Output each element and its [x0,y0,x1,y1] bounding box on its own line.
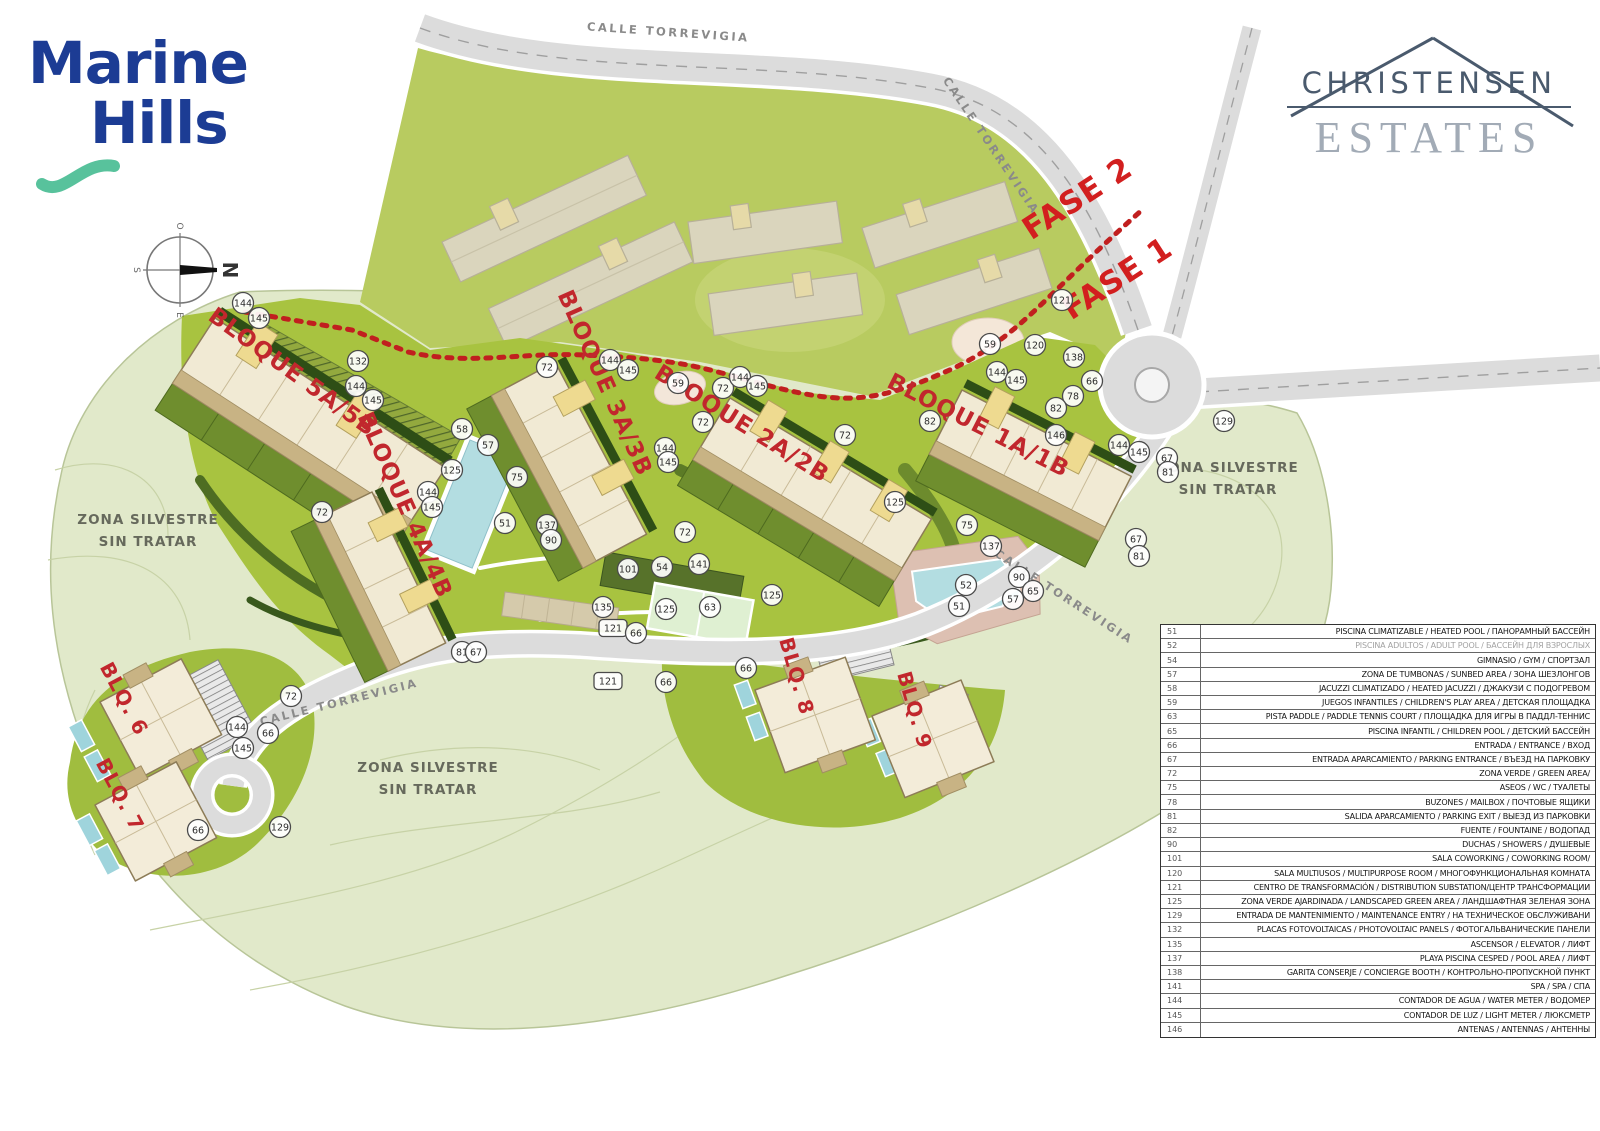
marine-hills-word-marine: Marine [28,34,288,92]
map-marker-129: 129 [1214,411,1235,432]
map-marker-121: 121 [599,620,627,637]
legend-row: 75 ASEOS / WC / ТУАЛЕТЫ [1161,781,1595,795]
map-marker-58: 58 [452,419,473,440]
legend-number: 81 [1161,810,1201,823]
svg-text:90: 90 [545,535,557,546]
legend-row: 63 PISTA PADDLE / PADDLE TENNIS COURT / … [1161,710,1595,724]
legend-row: 82 FUENTE / FOUNTAINE / ВОДОПАД [1161,824,1595,838]
svg-text:101: 101 [619,564,637,575]
legend-description: PISCINA ADULTOS / ADULT POOL / БАССЕЙН Д… [1201,641,1595,650]
map-marker-66: 66 [736,658,757,679]
legend-number: 101 [1161,852,1201,865]
logo-divider [1287,106,1571,108]
marine-hills-logo: Marine Hills [28,34,288,194]
svg-text:51: 51 [953,601,965,612]
map-marker-144: 144 [987,362,1008,383]
legend-description: SPA / SPA / СПА [1201,982,1595,991]
legend-row: 78 BUZONES / MAILBOX / ПОЧТОВЫЕ ЯЩИКИ [1161,795,1595,809]
legend-number: 59 [1161,696,1201,709]
legend-row: 137 PLAYA PISCINA CESPED / POOL AREA / Л… [1161,952,1595,966]
legend-row: 57 ZONA DE TUMBONAS / SUNBED AREA / ЗОНА… [1161,668,1595,682]
map-marker-145: 145 [618,360,639,381]
legend-row: 120 SALA MULTIUSOS / MULTIPURPOSE ROOM /… [1161,867,1595,881]
north-arrow [180,265,217,275]
svg-text:145: 145 [250,313,268,324]
christensen-estates-logo: CHRISTENSEN ESTATES [1283,14,1575,164]
map-marker-144: 144 [227,717,248,738]
map-marker-125: 125 [442,460,463,481]
svg-text:81: 81 [1133,551,1145,562]
legend-number: 138 [1161,966,1201,979]
map-marker-90: 90 [541,530,562,551]
svg-text:144: 144 [1110,440,1128,451]
map-marker-66: 66 [626,623,647,644]
svg-text:137: 137 [982,541,1000,552]
map-marker-57: 57 [478,435,499,456]
map-marker-145: 145 [658,452,679,473]
legend-description: ENTRADA APARCAMIENTO / PARKING ENTRANCE … [1201,755,1595,764]
legend-description: ZONA VERDE / GREEN AREA/ [1201,769,1595,778]
svg-text:125: 125 [657,604,675,615]
legend-number: 132 [1161,923,1201,936]
legend-description: SALA COWORKING / COWORKING ROOM/ [1201,854,1595,863]
svg-text:72: 72 [285,691,297,702]
svg-text:145: 145 [748,381,766,392]
map-marker-145: 145 [1006,370,1027,391]
legend-number: 54 [1161,653,1201,666]
svg-text:66: 66 [1086,376,1098,387]
svg-text:67: 67 [470,647,482,658]
legend-row: 146 ANTENAS / ANTENNAS / АНТЕННЫ [1161,1023,1595,1037]
svg-text:144: 144 [601,355,619,366]
legend-description: DUCHAS / SHOWERS / ДУШЕВЫЕ [1201,840,1595,849]
map-marker-81: 81 [1158,462,1179,483]
legend-number: 141 [1161,980,1201,993]
svg-text:67: 67 [1130,534,1142,545]
page: { "branding": { "marine_hills": {"line1"… [0,0,1600,1131]
compass-e: E [174,312,184,318]
map-marker-66: 66 [656,672,677,693]
legend-number: 90 [1161,838,1201,851]
svg-text:121: 121 [1053,295,1071,306]
legend-description: SALIDA APARCAMIENTO / PARKING EXIT / ВЫЕ… [1201,812,1595,821]
svg-text:63: 63 [704,602,716,613]
svg-text:90: 90 [1013,572,1025,583]
legend-description: ZONA VERDE AJARDINADA / LANDSCAPED GREEN… [1201,897,1595,906]
svg-text:72: 72 [316,507,328,518]
roundabout [1100,333,1204,437]
legend-row: 144 CONTADOR DE AGUA / WATER METER / ВОД… [1161,994,1595,1008]
svg-text:129: 129 [271,822,289,833]
legend-row: 138 GARITA CONSERJE / CONCIERGE BOOTH / … [1161,966,1595,980]
legend-number: 58 [1161,682,1201,695]
map-marker-72: 72 [281,686,302,707]
svg-text:75: 75 [961,520,973,531]
map-marker-51: 51 [495,513,516,534]
legend-number: 67 [1161,753,1201,766]
legend-description: ASCENSOR / ELEVATOR / ЛИФТ [1201,940,1595,949]
svg-text:145: 145 [234,743,252,754]
svg-text:75: 75 [511,472,523,483]
legend-number: 135 [1161,938,1201,951]
map-marker-125: 125 [762,585,783,606]
svg-text:66: 66 [262,728,274,739]
svg-text:145: 145 [1130,447,1148,458]
legend-number: 65 [1161,724,1201,737]
svg-text:57: 57 [1007,594,1019,605]
map-marker-82: 82 [920,411,941,432]
legend-description: CENTRO DE TRANSFORMACIÓN / DISTRIBUTION … [1201,883,1595,892]
legend-description: JUEGOS INFANTILES / CHILDREN'S PLAY AREA… [1201,698,1595,707]
legend-description: ANTENAS / ANTENNAS / АНТЕННЫ [1201,1025,1595,1034]
svg-text:66: 66 [740,663,752,674]
map-marker-72: 72 [537,357,558,378]
legend-number: 72 [1161,767,1201,780]
map-marker-145: 145 [249,308,270,329]
legend-row: 67 ENTRADA APARCAMIENTO / PARKING ENTRAN… [1161,753,1595,767]
svg-text:72: 72 [541,362,553,373]
svg-text:66: 66 [660,677,672,688]
svg-text:51: 51 [499,518,511,529]
legend-description: BUZONES / MAILBOX / ПОЧТОВЫЕ ЯЩИКИ [1201,798,1595,807]
legend-row: 81 SALIDA APARCAMIENTO / PARKING EXIT / … [1161,810,1595,824]
compass-w: O [174,222,184,229]
map-marker-72: 72 [693,412,714,433]
legend-description: PISCINA CLIMATIZABLE / HEATED POOL / ПАН… [1201,627,1595,636]
legend-number: 75 [1161,781,1201,794]
svg-text:59: 59 [672,378,684,389]
map-marker-144: 144 [1109,435,1130,456]
map-marker-138: 138 [1064,347,1085,368]
map-marker-129: 129 [270,817,291,838]
svg-text:72: 72 [717,383,729,394]
legend-number: 121 [1161,881,1201,894]
road-label-calle-torrevigia-1: CALLE TORREVIGIA [587,19,750,44]
legend-row: 51 PISCINA CLIMATIZABLE / HEATED POOL / … [1161,625,1595,639]
svg-text:66: 66 [630,628,642,639]
svg-text:132: 132 [349,356,367,367]
legend-row: 135 ASCENSOR / ELEVATOR / ЛИФТ [1161,938,1595,952]
svg-text:145: 145 [423,502,441,513]
legend-row: 90 DUCHAS / SHOWERS / ДУШЕВЫЕ [1161,838,1595,852]
legend-row: 121 CENTRO DE TRANSFORMACIÓN / DISTRIBUT… [1161,881,1595,895]
map-marker-145: 145 [1129,442,1150,463]
legend-description: ZONA DE TUMBONAS / SUNBED AREA / ЗОНА ШЕ… [1201,670,1595,679]
map-marker-72: 72 [675,522,696,543]
legend-number: 145 [1161,1009,1201,1022]
legend-description: ENTRADA DE MANTENIMIENTO / MAINTENANCE E… [1201,911,1595,920]
map-marker-144: 144 [346,376,367,397]
map-marker-132: 132 [348,351,369,372]
compass-n: N [218,262,242,279]
svg-text:125: 125 [443,465,461,476]
svg-text:82: 82 [924,416,936,427]
svg-text:66: 66 [192,825,204,836]
map-marker-145: 145 [363,390,384,411]
svg-text:141: 141 [690,559,708,570]
legend-number: 82 [1161,824,1201,837]
legend-number: 78 [1161,795,1201,808]
legend-row: 52 PISCINA ADULTOS / ADULT POOL / БАССЕЙ… [1161,639,1595,653]
map-marker-145: 145 [747,376,768,397]
svg-text:120: 120 [1026,340,1044,351]
legend-description: CONTADOR DE LUZ / LIGHT METER / ЛЮКСМЕТР [1201,1011,1595,1020]
map-marker-145: 145 [233,738,254,759]
legend-number: 129 [1161,909,1201,922]
legend-number: 57 [1161,668,1201,681]
marine-hills-word-hills: Hills [90,94,288,152]
svg-text:54: 54 [656,562,668,573]
map-marker-121: 121 [594,673,622,690]
svg-text:146: 146 [1047,430,1065,441]
svg-text:72: 72 [697,417,709,428]
map-marker-121: 121 [1052,290,1073,311]
legend-row: 65 PISCINA INFANTIL / CHILDREN POOL / ДЕ… [1161,724,1595,738]
svg-text:144: 144 [228,722,246,733]
legend-description: PISTA PADDLE / PADDLE TENNIS COURT / ПЛО… [1201,712,1595,721]
legend-number: 146 [1161,1023,1201,1037]
svg-text:72: 72 [839,430,851,441]
map-marker-120: 120 [1025,335,1046,356]
legend-row: 141 SPA / SPA / СПА [1161,980,1595,994]
map-marker-135: 135 [593,597,614,618]
svg-text:129: 129 [1215,416,1233,427]
svg-text:144: 144 [731,372,749,383]
legend-number: 144 [1161,994,1201,1007]
legend-number: 125 [1161,895,1201,908]
svg-text:81: 81 [1162,467,1174,478]
svg-text:57: 57 [482,440,494,451]
map-marker-66: 66 [1082,371,1103,392]
phase2-area [360,48,1126,396]
svg-text:65: 65 [1027,586,1039,597]
legend-description: ASEOS / WC / ТУАЛЕТЫ [1201,783,1595,792]
legend-description: GARITA CONSERJE / CONCIERGE BOOTH / КОНТ… [1201,968,1595,977]
legend-row: 101 SALA COWORKING / COWORKING ROOM/ [1161,852,1595,866]
legend-row: 132 PLACAS FOTOVOLTAICAS / PHOTOVOLTAIC … [1161,923,1595,937]
svg-text:82: 82 [1050,403,1062,414]
map-marker-81: 81 [1129,546,1150,567]
svg-text:145: 145 [659,457,677,468]
legend-description: ENTRADA / ENTRANCE / ВХОД [1201,741,1595,750]
map-marker-75: 75 [957,515,978,536]
svg-text:78: 78 [1067,391,1079,402]
map-marker-125: 125 [656,599,677,620]
legend-row: 66 ENTRADA / ENTRANCE / ВХОД [1161,739,1595,753]
legend-number: 52 [1161,639,1201,652]
map-marker-54: 54 [652,557,673,578]
svg-text:135: 135 [594,602,612,613]
map-marker-141: 141 [689,554,710,575]
map-marker-137: 137 [981,536,1002,557]
svg-text:121: 121 [599,676,617,687]
legend-row: 54 GIMNASIO / GYM / СПОРТЗАЛ [1161,653,1595,667]
map-marker-67: 67 [466,642,487,663]
estates-wordmark: ESTATES [1283,112,1575,163]
svg-text:144: 144 [988,367,1006,378]
legend-number: 51 [1161,625,1201,638]
map-marker-145: 145 [422,497,443,518]
legend-row: 129 ENTRADA DE MANTENIMIENTO / MAINTENAN… [1161,909,1595,923]
legend-description: GIMNASIO / GYM / СПОРТЗАЛ [1201,656,1595,665]
map-marker-59: 59 [668,373,689,394]
svg-text:145: 145 [619,365,637,376]
svg-text:144: 144 [347,381,365,392]
legend-row: 59 JUEGOS INFANTILES / CHILDREN'S PLAY A… [1161,696,1595,710]
legend-description: JACUZZI CLIMATIZADO / HEATED JACUZZI / Д… [1201,684,1595,693]
map-marker-146: 146 [1046,425,1067,446]
compass-s: S [131,267,141,273]
svg-text:125: 125 [763,590,781,601]
legend-row: 145 CONTADOR DE LUZ / LIGHT METER / ЛЮКС… [1161,1009,1595,1023]
legend-row: 58 JACUZZI CLIMATIZADO / HEATED JACUZZI … [1161,682,1595,696]
map-marker-101: 101 [618,559,639,580]
legend-row: 125 ZONA VERDE AJARDINADA / LANDSCAPED G… [1161,895,1595,909]
svg-text:121: 121 [604,623,622,634]
legend-description: CONTADOR DE AGUA / WATER METER / ВОДОМЕР [1201,996,1595,1005]
legend-description: SALA MULTIUSOS / MULTIPURPOSE ROOM / МНО… [1201,869,1595,878]
map-marker-51: 51 [949,596,970,617]
map-marker-66: 66 [258,723,279,744]
svg-text:145: 145 [1007,375,1025,386]
svg-text:59: 59 [984,339,996,350]
map-marker-66: 66 [188,820,209,841]
legend-table: 51 PISCINA CLIMATIZABLE / HEATED POOL / … [1160,624,1596,1038]
compass-rose: N O E S [125,215,245,325]
map-marker-57: 57 [1003,589,1024,610]
legend-number: 66 [1161,739,1201,752]
legend-number: 63 [1161,710,1201,723]
legend-number: 120 [1161,867,1201,880]
legend-description: PISCINA INFANTIL / CHILDREN POOL / ДЕТСК… [1201,727,1595,736]
legend-description: PLACAS FOTOVOLTAICAS / PHOTOVOLTAIC PANE… [1201,925,1595,934]
map-marker-82: 82 [1046,398,1067,419]
svg-text:138: 138 [1065,352,1083,363]
legend-row: 72 ZONA VERDE / GREEN AREA/ [1161,767,1595,781]
legend-description: FUENTE / FOUNTAINE / ВОДОПАД [1201,826,1595,835]
map-marker-72: 72 [835,425,856,446]
svg-text:145: 145 [364,395,382,406]
map-marker-52: 52 [956,575,977,596]
map-marker-59: 59 [980,334,1001,355]
christensen-wordmark: CHRISTENSEN [1289,66,1569,100]
svg-text:125: 125 [886,497,904,508]
map-marker-72: 72 [312,502,333,523]
svg-text:72: 72 [679,527,691,538]
legend-description: PLAYA PISCINA CESPED / POOL AREA / ЛИФТ [1201,954,1595,963]
map-marker-125: 125 [885,492,906,513]
svg-text:58: 58 [456,424,468,435]
map-marker-65: 65 [1023,581,1044,602]
map-marker-75: 75 [507,467,528,488]
svg-text:52: 52 [960,580,972,591]
map-marker-63: 63 [700,597,721,618]
legend-number: 137 [1161,952,1201,965]
